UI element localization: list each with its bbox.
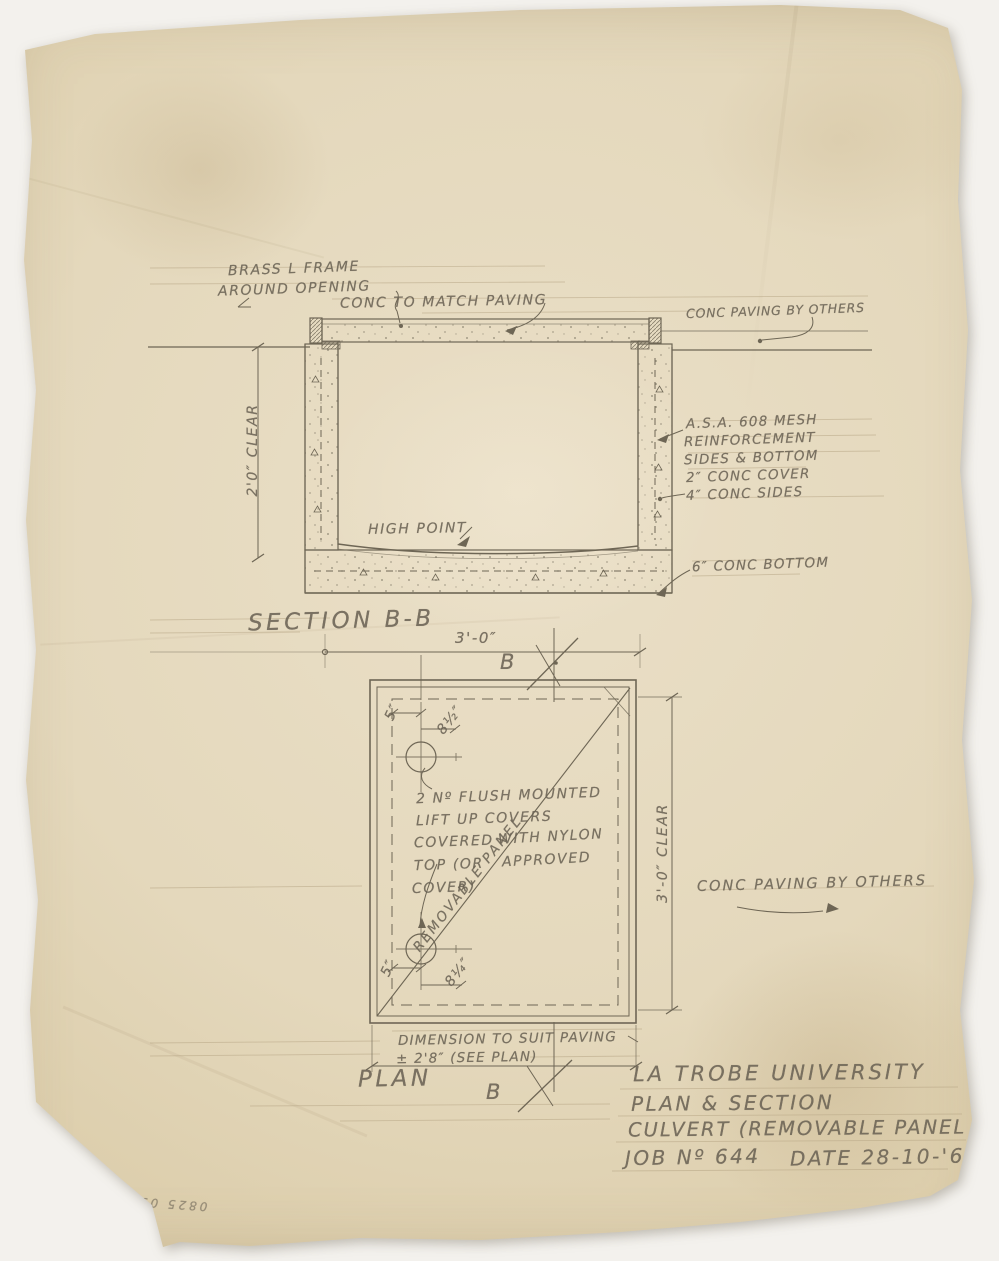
note-covers-line3: COVERED — [414, 833, 494, 852]
plan-title: PLAN — [358, 1065, 432, 1092]
dim-section-clear-height: 2'0″ CLEAR — [245, 375, 261, 525]
dim-section-width: 3'-0″ — [455, 629, 497, 647]
title-block-job-number: JOB Nº 644 — [625, 1144, 761, 1170]
tracing-paper: BRASS L FRAME AROUND OPENING CONC TO MAT… — [0, 0, 999, 1261]
drawing-sheet: BRASS L FRAME AROUND OPENING CONC TO MAT… — [0, 0, 999, 1261]
section-title: SECTION B-B — [248, 606, 435, 637]
section-marker-top: B — [500, 650, 515, 674]
note-dimension-suit-paving-line2: ± 2'8″ (SEE PLAN) — [396, 1049, 538, 1067]
title-block-subject: CULVERT (REMOVABLE PANEL — [628, 1116, 967, 1142]
title-block-drawing-name: PLAN & SECTION — [631, 1090, 834, 1116]
title-block-project: LA TROBE UNIVERSITY — [633, 1060, 926, 1087]
section-marker-bottom: B — [486, 1080, 501, 1104]
title-block-date: DATE 28-10-'66 — [790, 1143, 981, 1170]
dim-plan-clear: 3'-0″ CLEAR — [655, 783, 671, 923]
note-high-point: HIGH POINT — [368, 520, 467, 538]
